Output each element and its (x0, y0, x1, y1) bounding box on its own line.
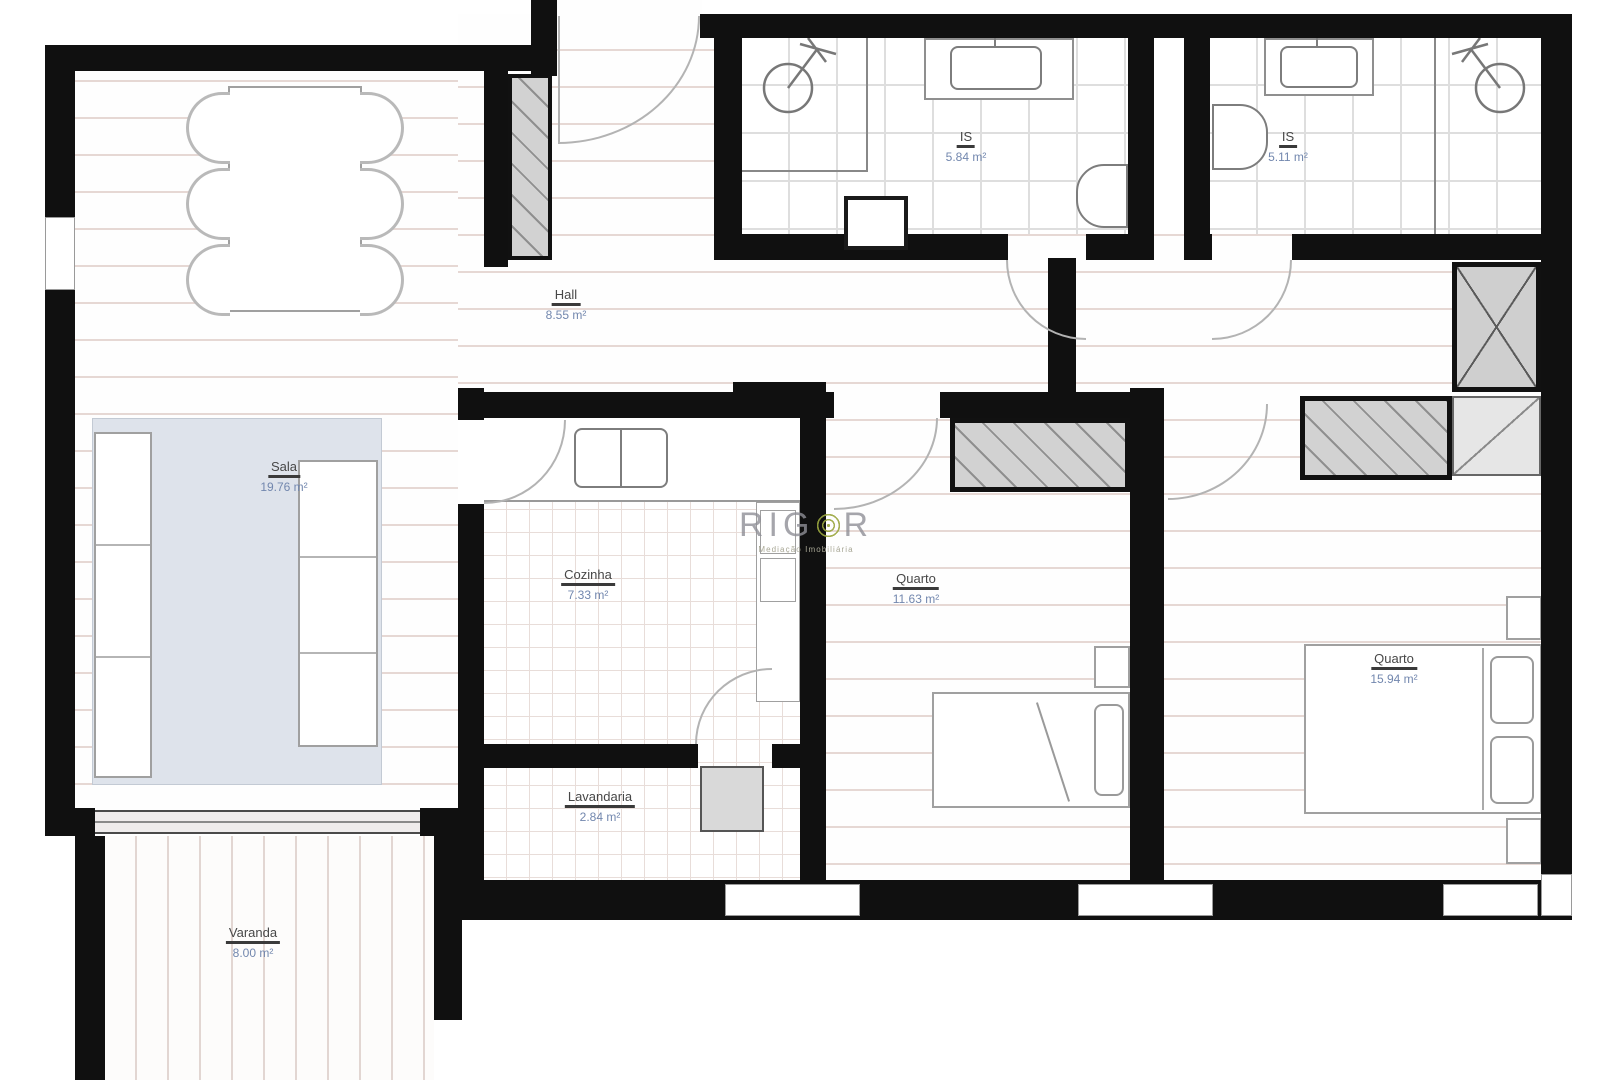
washing-machine (700, 766, 764, 832)
room-name: Sala (268, 459, 300, 478)
nightstand (1506, 818, 1542, 864)
watermark-subtitle: Mediação Imobiliária (726, 545, 886, 554)
room-name: Hall (552, 287, 580, 306)
room-area: 11.63 m² (893, 593, 939, 606)
sofa-cushion-line (96, 656, 150, 658)
watermark-brand: RIGR (726, 508, 886, 542)
sofa-left (94, 432, 152, 778)
wall-segment (531, 0, 557, 76)
toilet (1076, 164, 1128, 228)
room-area: 2.84 m² (565, 811, 635, 824)
wall-segment (458, 880, 1572, 920)
bathroom-sink (1280, 46, 1358, 88)
pillow (1490, 656, 1534, 724)
pillow (1094, 704, 1124, 796)
wall-segment (940, 392, 1130, 418)
sliding-door-track (95, 821, 420, 823)
sofa-cushion-line (300, 556, 376, 558)
room-area: 5.11 m² (1268, 151, 1308, 164)
room-name: Cozinha (561, 567, 615, 586)
wall-segment (1128, 14, 1154, 260)
wall-segment (733, 382, 826, 418)
window (725, 884, 860, 916)
sink-tap (994, 38, 996, 48)
bathroom-cabinet (844, 196, 908, 250)
window (1078, 884, 1213, 916)
door-leaf-entry (558, 16, 560, 144)
window (45, 217, 75, 290)
wardrobe-corner (1452, 396, 1541, 476)
shower-partition (866, 38, 868, 172)
room-label-lavandaria: Lavandaria 2.84 m² (565, 788, 635, 824)
hall-closet (508, 74, 552, 260)
wall-segment (1086, 234, 1128, 260)
kitchen-sink-divider (620, 430, 622, 486)
watermark-brand-prefix: RIG (739, 506, 814, 544)
wall-segment (1184, 14, 1210, 260)
wall-segment (75, 836, 105, 1080)
room-name: IS (957, 129, 975, 148)
room-area: 15.94 m² (1370, 673, 1417, 686)
wall-segment (434, 836, 462, 1020)
wall-segment (45, 808, 95, 836)
floor-plan: Sala 19.76 m² Hall 8.55 m² Cozinha 7.33 … (0, 0, 1621, 1080)
bed-headboard-line (1482, 648, 1484, 810)
shower-partition (1434, 38, 1436, 234)
wall-segment (45, 290, 75, 835)
wall-segment (1292, 234, 1542, 260)
door-opening (458, 420, 484, 504)
room-area: 8.55 m² (546, 309, 587, 322)
wall-segment (420, 808, 462, 836)
wall-segment (45, 45, 75, 217)
spiral-o-icon (816, 513, 841, 538)
wall-segment (1130, 388, 1164, 880)
room-label-varanda: Varanda 8.00 m² (226, 924, 280, 960)
wardrobe-bedroom-1 (950, 418, 1130, 492)
room-label-sala: Sala 19.76 m² (260, 458, 307, 494)
room-label-is-2: IS 5.11 m² (1268, 128, 1308, 164)
wardrobe-hall (1452, 262, 1541, 392)
wall-segment (772, 744, 800, 768)
sofa-cushion-line (96, 544, 150, 546)
wall-segment (1184, 234, 1212, 260)
room-label-cozinha: Cozinha 7.33 m² (561, 566, 615, 602)
room-label-is-1: IS 5.84 m² (946, 128, 987, 164)
window (1443, 884, 1538, 916)
room-label-quarto-1: Quarto 11.63 m² (893, 570, 939, 606)
bathroom-sink (950, 46, 1042, 90)
wall-segment (1541, 14, 1572, 919)
wall-segment (458, 392, 736, 418)
wall-segment (714, 14, 742, 258)
wall-segment (820, 392, 834, 418)
room-area: 8.00 m² (226, 947, 280, 960)
sofa-cushion-line (300, 652, 376, 654)
room-label-hall: Hall 8.55 m² (546, 286, 587, 322)
shower-partition (742, 170, 868, 172)
watermark-logo: RIGR Mediação Imobiliária (726, 508, 886, 554)
room-label-quarto-2: Quarto 15.94 m² (1370, 650, 1417, 686)
room-name: Quarto (893, 571, 939, 590)
watermark-brand-suffix: R (843, 506, 873, 544)
window (1541, 874, 1572, 916)
kitchen-appliance (760, 558, 796, 602)
wall-segment (484, 71, 508, 267)
nightstand (1506, 596, 1542, 640)
wardrobe-bedroom-2 (1300, 396, 1452, 480)
shower-head-icon (1448, 40, 1540, 120)
room-name: IS (1279, 129, 1297, 148)
room-area: 7.33 m² (561, 589, 615, 602)
pillow (1490, 736, 1534, 804)
shaft (1154, 38, 1184, 234)
sink-tap (1316, 38, 1318, 48)
sofa-right (298, 460, 378, 747)
dining-table (228, 86, 362, 312)
room-area: 5.84 m² (946, 151, 987, 164)
room-name: Lavandaria (565, 789, 635, 808)
wall-segment (484, 744, 698, 768)
wall-segment (45, 45, 531, 71)
shower-head-icon (748, 40, 840, 120)
toilet (1212, 104, 1268, 170)
room-name: Quarto (1371, 651, 1417, 670)
room-name: Varanda (226, 925, 280, 944)
nightstand (1094, 646, 1130, 688)
wall-segment (800, 418, 826, 880)
room-area: 19.76 m² (260, 481, 307, 494)
